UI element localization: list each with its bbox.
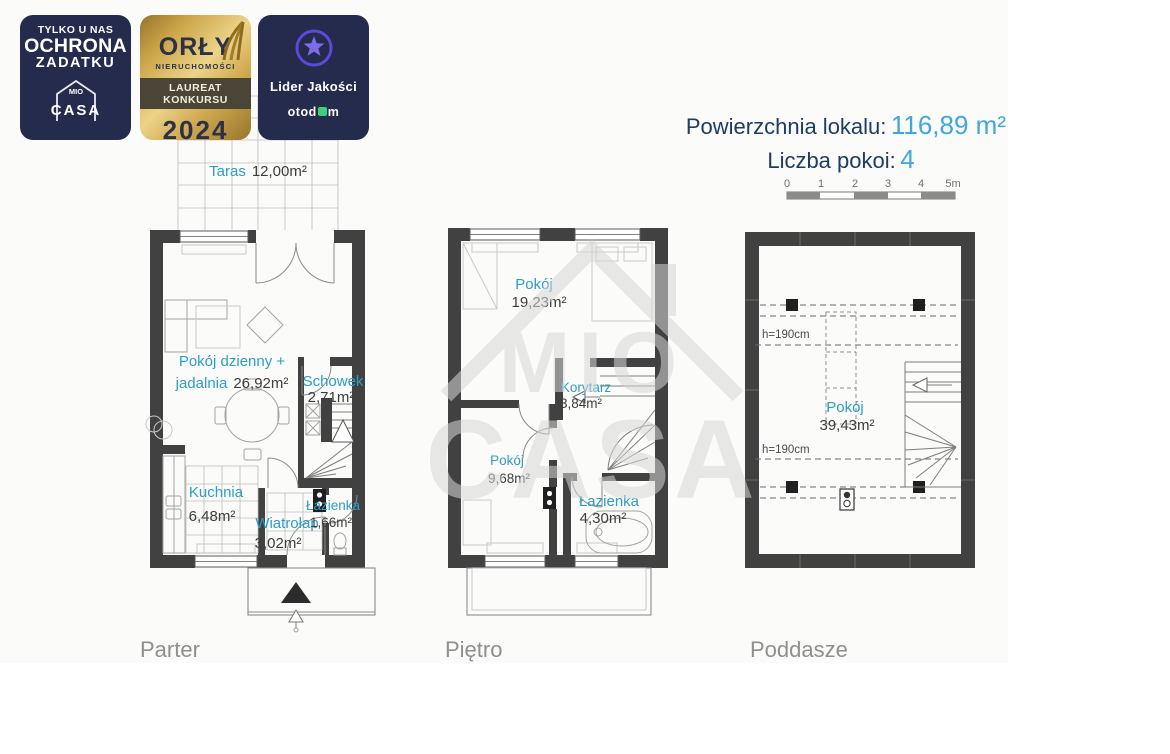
badge1-line2: OCHRONA (20, 36, 131, 56)
pietro-balcony (467, 568, 651, 615)
schowek-area: 2,71m² (308, 389, 355, 406)
lazienka1-area: 1,66m² (310, 515, 353, 530)
rooms-label: Liczba pokoi: (767, 148, 895, 173)
badge-ochrona-zadatku: TYLKO U NAS OCHRONA ZADATKU MIO CASA (20, 15, 131, 140)
attic-pokoj-name: Pokój (826, 399, 864, 416)
scale-tick-4: 4 (918, 178, 924, 190)
wiatrolap-area: 3,02m² (255, 535, 302, 552)
logo-mio-text: MIO (68, 87, 82, 96)
terrace-door (256, 243, 334, 283)
rooms-value: 4 (900, 144, 914, 174)
otodom-green-square-icon (318, 107, 327, 116)
taras-name: Taras (209, 163, 246, 180)
living-label-line1: Pokój dzienny + (179, 353, 286, 370)
living-name2: jadalnia (175, 375, 228, 392)
floor-label-pietro: Piętro (445, 637, 502, 662)
scale-tick-5: 5m (945, 178, 960, 190)
otodom-text-pre: otod (288, 105, 317, 119)
floorplan-listing-image: Taras12,00m² (0, 0, 1170, 754)
stairs-direction-arrow (913, 378, 927, 392)
lider-jakosci-title: Lider Jakości (258, 79, 369, 94)
area-label: Powierzchnia lokalu: (686, 114, 887, 139)
entrance-arrow (281, 582, 311, 603)
orly-subtitle: NIERUCHOMOŚCI (140, 62, 251, 71)
taras-label: Taras12,00m² (209, 163, 307, 180)
lazienka1-name: Łazienka (306, 498, 361, 513)
height-note-upper: h=190cm (762, 329, 810, 341)
kuchnia-area: 6,48m² (189, 508, 236, 525)
orly-banner: LAUREAT KONKURSU (140, 78, 251, 109)
badge1-line3: ZADATKU (20, 56, 131, 72)
attic-pokoj-area: 39,43m² (819, 417, 874, 434)
scale-tick-0: 0 (784, 178, 790, 190)
orly-year: 2024 (140, 115, 251, 146)
otodom-logo: otodm (258, 105, 369, 119)
kitchen-fittings (163, 456, 258, 553)
otodom-text-post: m (328, 105, 340, 119)
scale-tick-3: 3 (885, 178, 891, 190)
living-label-line2: jadalnia26,92m² (175, 375, 289, 392)
entrance-porch (248, 568, 375, 632)
parter-plan: Taras12,00m² (146, 96, 375, 632)
feather-icon (214, 20, 246, 62)
logo-casa-text: CASA (50, 102, 101, 119)
area-value: 116,89 m² (891, 110, 1006, 140)
schowek-name: Schowek (303, 373, 364, 390)
stairs-up-arrow (332, 420, 354, 442)
kuchnia-name: Kuchnia (189, 484, 244, 501)
scale-tick-1: 1 (818, 178, 824, 190)
badge-lider-jakosci: Lider Jakości otodm (258, 15, 369, 140)
badge-orly-nieruchomosci: ORŁY NIERUCHOMOŚCI LAUREAT KONKURSU 2024 (140, 15, 251, 140)
listing-summary: Powierzchnia lokalu: 116,89 m² Liczba po… (676, 110, 1006, 175)
area-row: Powierzchnia lokalu: 116,89 m² (676, 110, 1006, 141)
height-note-lower: h=190cm (762, 444, 810, 456)
poddasze-stairs (905, 362, 961, 487)
living-area: 26,92m² (233, 375, 288, 392)
watermark-casa: CASA (425, 397, 758, 522)
poddasze-plan: h=190cm h=190cm Pokój 39,43m² (745, 232, 975, 568)
taras-area: 12,00m² (252, 163, 307, 180)
star-badge-icon (292, 26, 336, 70)
floor-label-poddasze: Poddasze (750, 637, 848, 662)
rooms-row: Liczba pokoi: 4 (676, 144, 1006, 175)
scale-tick-2: 2 (852, 178, 858, 190)
scale-bar: 0 1 2 3 4 5m (784, 178, 961, 199)
floor-label-parter: Parter (140, 637, 200, 662)
mio-casa-logo-icon: MIO CASA (46, 77, 106, 123)
